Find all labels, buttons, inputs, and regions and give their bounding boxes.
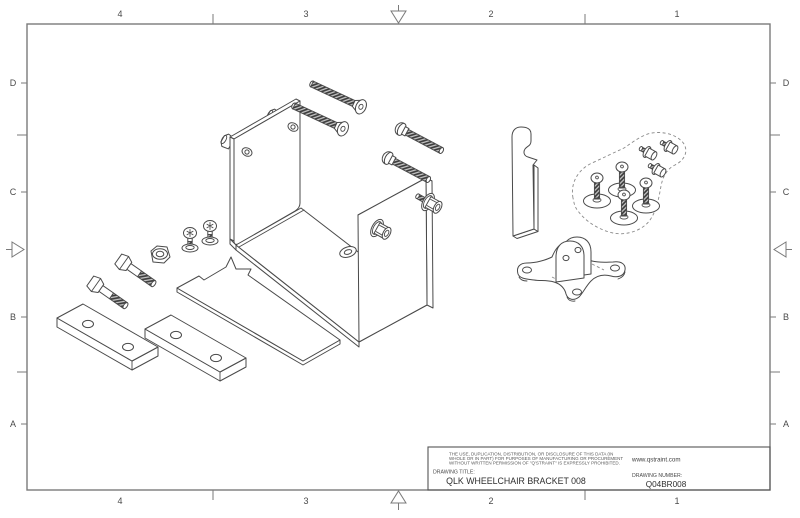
- zone-label-right-a: A: [783, 419, 789, 429]
- bracket-right-wall: [358, 178, 433, 342]
- part-foot-screw-2: [584, 173, 611, 208]
- zone-label-top-4: 4: [117, 9, 122, 19]
- zone-label-top-2: 2: [488, 9, 493, 19]
- part-carriage-bolt-1: [393, 121, 446, 157]
- zone-label-left-d: D: [10, 78, 17, 88]
- center-mark-right: [774, 242, 792, 257]
- drawing-title-label: DRAWING TITLE:: [433, 470, 475, 476]
- website-link[interactable]: www.qstraint.com: [631, 457, 680, 464]
- part-rivet-nut-1: [637, 143, 659, 163]
- part-rivet-nut-2: [658, 137, 680, 157]
- clevis-bracket: [556, 237, 591, 282]
- drawing-sheet: 4 3 2 1 4 3 2 1 D C B A D C B A: [0, 0, 800, 518]
- part-flathead-screw-1: [307, 76, 369, 115]
- zone-label-top-3: 3: [303, 9, 308, 19]
- part-mounting-plate-2: [145, 315, 246, 381]
- part-foot-screw-3: [633, 178, 660, 213]
- part-torx-screw-2: [202, 221, 218, 246]
- zone-label-bottom-4: 4: [117, 496, 122, 506]
- zone-label-right-c: C: [783, 187, 790, 197]
- part-hex-nut: [151, 246, 170, 263]
- center-mark-left: [6, 242, 24, 257]
- part-swivel-base: [517, 237, 625, 301]
- drawing-title: QLK WHEELCHAIR BRACKET 008: [446, 476, 586, 486]
- zone-label-bottom-2: 2: [488, 496, 493, 506]
- engineering-drawing: 4 3 2 1 4 3 2 1 D C B A D C B A: [0, 0, 800, 518]
- zone-label-bottom-3: 3: [303, 496, 308, 506]
- zone-label-right-d: D: [783, 78, 790, 88]
- title-block: THE USE, DUPLICATION, DISTRIBUTION, OR D…: [428, 447, 770, 490]
- zone-label-right-b: B: [783, 312, 789, 322]
- part-carriage-bolt-2: [380, 150, 433, 186]
- zone-label-top-1: 1: [674, 9, 679, 19]
- zone-label-bottom-1: 1: [674, 496, 679, 506]
- drawing-number: Q04BR008: [646, 480, 687, 489]
- drawing-number-label: DRAWING NUMBER:: [632, 473, 682, 479]
- part-hook-bracket: [512, 127, 538, 239]
- zone-label-left-c: C: [10, 187, 17, 197]
- center-mark-bottom: [391, 491, 406, 510]
- legal-text-line-3: WITHOUT WRITTEN PERMISSION OF "Q'STRAINT…: [449, 461, 620, 466]
- part-mounting-plate-1: [57, 304, 158, 370]
- part-hex-bolt-2: [86, 274, 132, 313]
- center-mark-top: [391, 5, 406, 23]
- zone-label-left-b: B: [10, 312, 16, 322]
- zone-label-left-a: A: [10, 419, 16, 429]
- part-torx-screw-1: [182, 228, 198, 253]
